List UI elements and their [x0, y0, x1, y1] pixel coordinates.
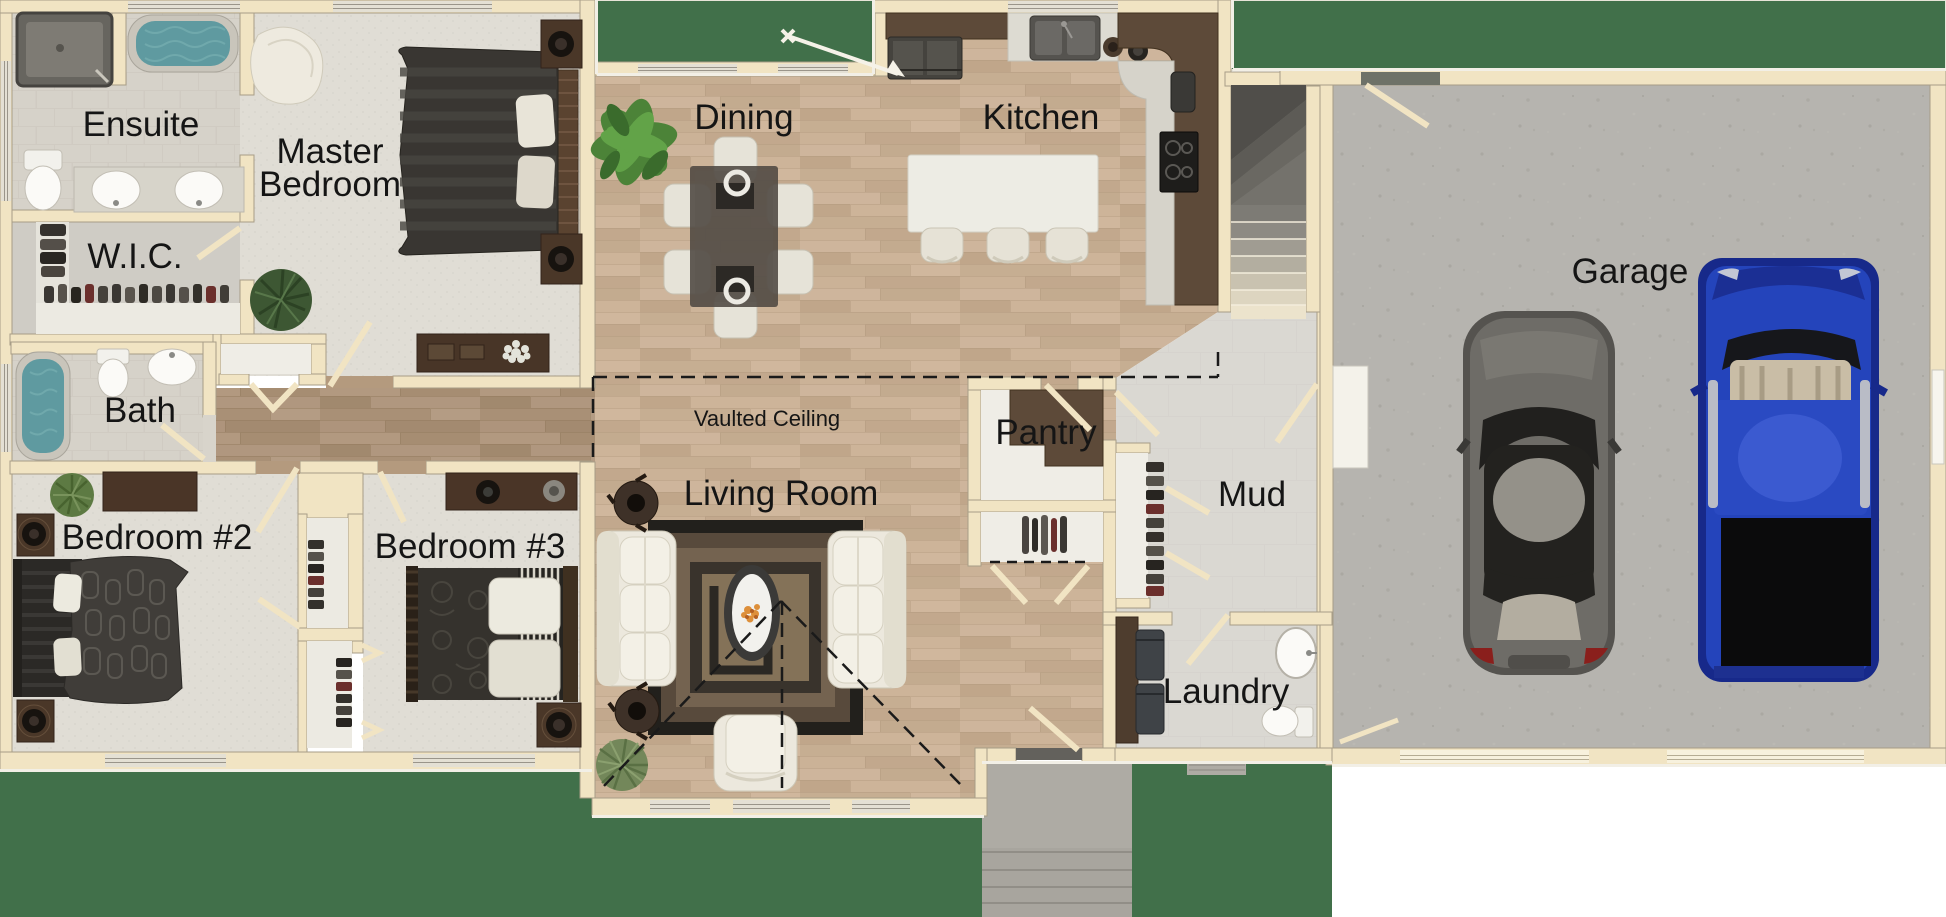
- svg-text:W.I.C.: W.I.C.: [87, 237, 182, 276]
- svg-text:Kitchen: Kitchen: [983, 98, 1100, 137]
- svg-text:Bath: Bath: [104, 391, 176, 430]
- svg-text:Ensuite: Ensuite: [83, 105, 200, 144]
- svg-text:Laundry: Laundry: [1163, 672, 1290, 711]
- svg-text:Garage: Garage: [1572, 252, 1689, 291]
- svg-text:Bedroom #3: Bedroom #3: [375, 527, 566, 566]
- svg-text:Dining: Dining: [694, 98, 793, 137]
- svg-text:Bedroom #2: Bedroom #2: [62, 518, 253, 557]
- svg-text:Pantry: Pantry: [995, 413, 1097, 452]
- svg-text:Mud: Mud: [1218, 475, 1286, 514]
- svg-text:Bedroom: Bedroom: [259, 165, 401, 204]
- svg-text:Living Room: Living Room: [684, 474, 879, 513]
- svg-text:Vaulted Ceiling: Vaulted Ceiling: [694, 406, 840, 431]
